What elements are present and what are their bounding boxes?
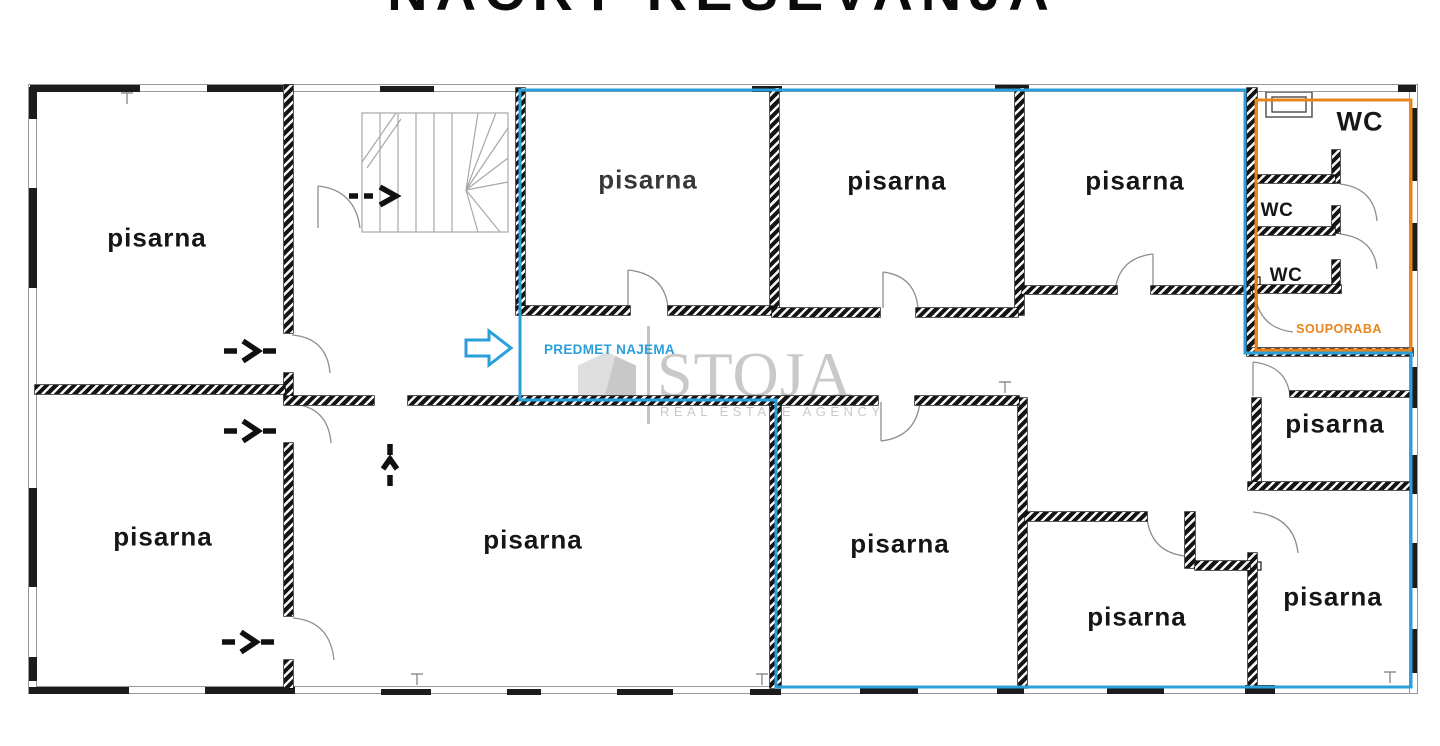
room-label-office-top-left: pisarna	[107, 223, 207, 254]
room-label-office-top-3: pisarna	[1085, 166, 1185, 197]
room-label-office-top-1: pisarna	[598, 165, 698, 196]
room-label-office-top-2: pisarna	[847, 166, 947, 197]
lease-pointer-arrow	[466, 331, 511, 365]
exit-arrow	[349, 187, 396, 205]
exit-arrow-up	[383, 444, 397, 486]
exit-arrow	[222, 632, 274, 652]
plan-overlays	[0, 0, 1440, 746]
room-label-office-bottom-right: pisarna	[1283, 582, 1383, 613]
floor-plan: NAČRT REŠEVANJA STOJA REAL ESTATE AGENCY	[0, 0, 1440, 746]
room-label-office-right-mid: pisarna	[1285, 409, 1385, 440]
room-label-office-bottom-left: pisarna	[113, 522, 213, 553]
room-label-wc-stall-a: WC	[1261, 200, 1294, 222]
room-label-wc-main: WC	[1337, 107, 1384, 138]
shared-area-boundary	[1256, 100, 1411, 350]
room-label-office-bottom-inner: pisarna	[1087, 602, 1187, 633]
lease-label: PREDMET NAJEMA	[544, 342, 675, 357]
shared-area-label: SOUPORABA	[1296, 322, 1382, 336]
room-label-office-bottom-mid: pisarna	[850, 529, 950, 560]
room-label-office-bottom-center: pisarna	[483, 525, 583, 556]
exit-arrow	[224, 341, 276, 361]
room-label-wc-stall-b: WC	[1270, 265, 1303, 287]
exit-arrows	[222, 187, 397, 652]
exit-arrow	[224, 421, 276, 441]
